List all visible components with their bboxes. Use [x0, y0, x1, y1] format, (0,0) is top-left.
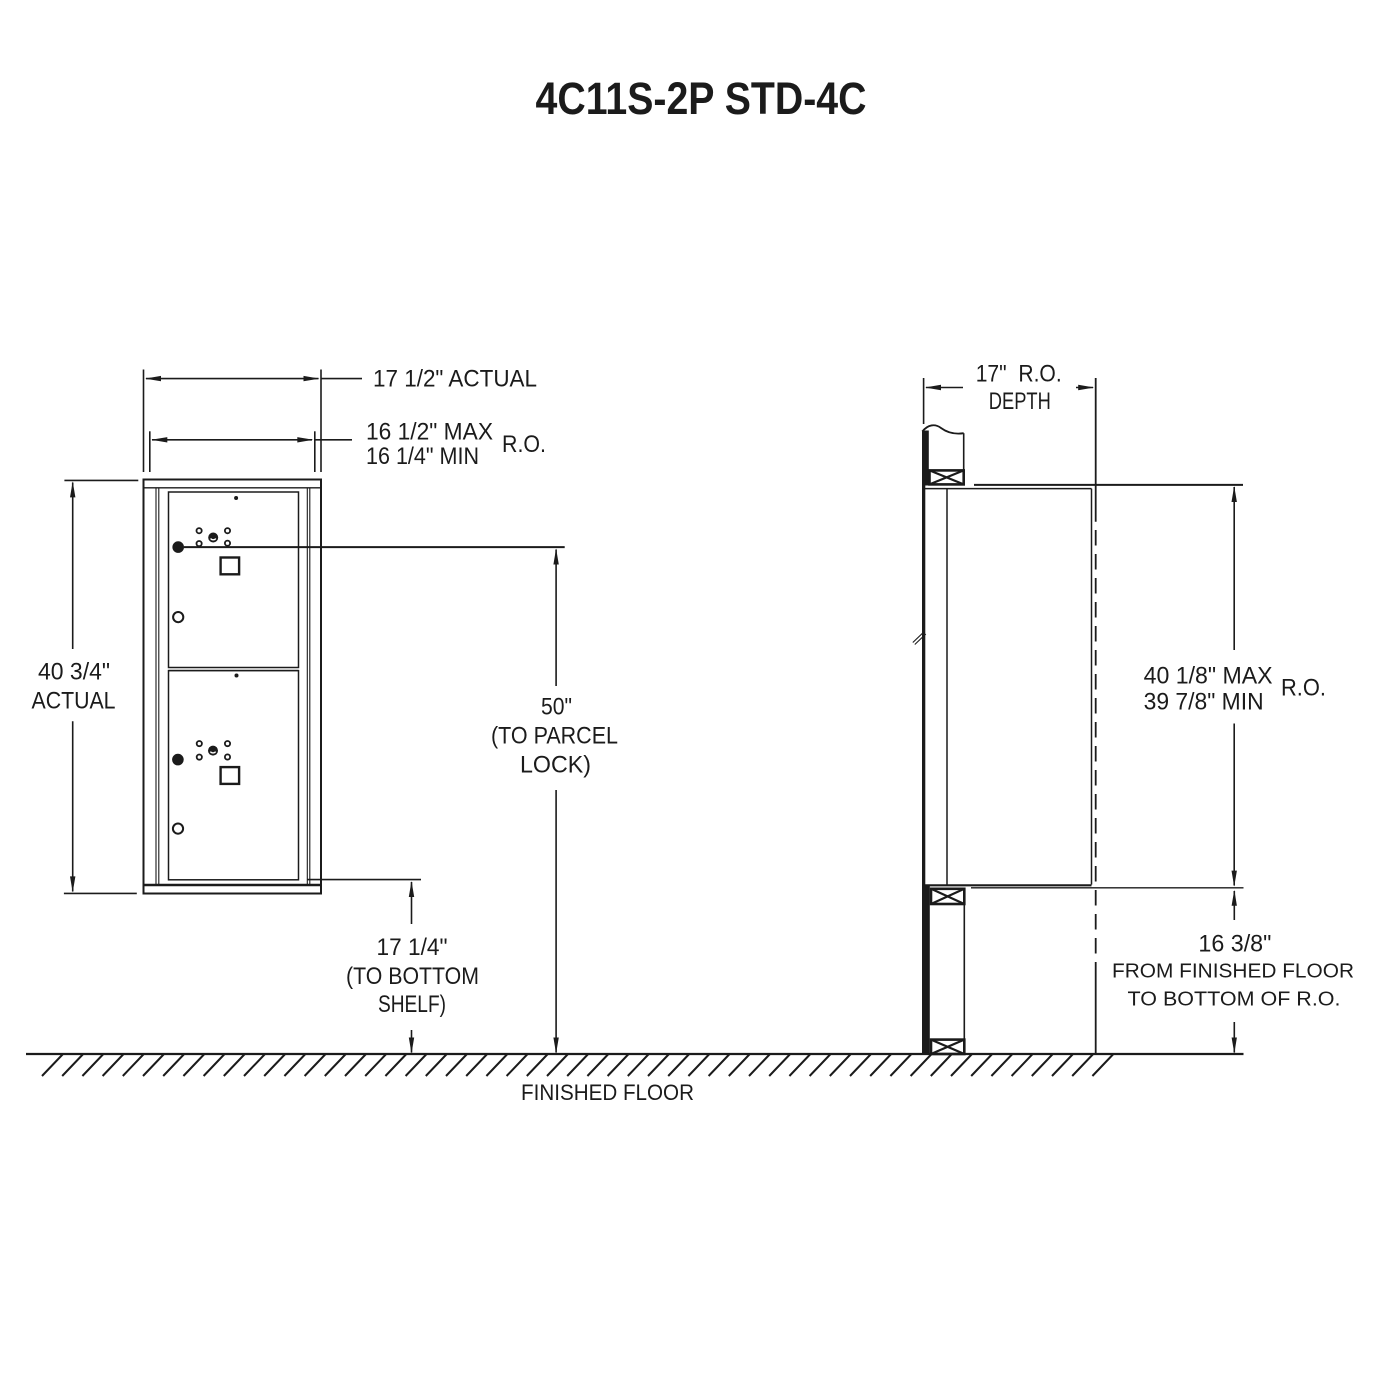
svg-text:ACTUAL: ACTUAL [32, 688, 116, 715]
svg-text:(TO PARCEL: (TO PARCEL [491, 723, 618, 750]
svg-text:DEPTH: DEPTH [989, 388, 1051, 415]
svg-text:17 1/4": 17 1/4" [377, 934, 448, 961]
svg-text:(TO BOTTOM: (TO BOTTOM [346, 963, 479, 990]
svg-text:17" R.O.: 17" R.O. [976, 361, 1062, 388]
svg-text:SHELF): SHELF) [378, 991, 446, 1018]
svg-text:16 1/4" MIN: 16 1/4" MIN [366, 443, 479, 470]
svg-text:4C11S-2P STD-4C: 4C11S-2P STD-4C [536, 73, 867, 124]
svg-text:FROM FINISHED FLOOR: FROM FINISHED FLOOR [1112, 961, 1354, 983]
svg-text:39 7/8" MIN: 39 7/8" MIN [1144, 689, 1264, 716]
svg-text:TO BOTTOM OF R.O.: TO BOTTOM OF R.O. [1128, 989, 1341, 1011]
svg-text:16 1/2" MAX: 16 1/2" MAX [366, 419, 493, 446]
svg-text:16 3/8": 16 3/8" [1198, 931, 1271, 958]
svg-text:LOCK): LOCK) [520, 752, 591, 779]
svg-text:R.O.: R.O. [502, 431, 546, 458]
svg-text:40 3/4": 40 3/4" [38, 659, 110, 686]
svg-text:FINISHED FLOOR: FINISHED FLOOR [521, 1080, 694, 1105]
svg-text:R.O.: R.O. [1281, 675, 1326, 702]
svg-text:40 1/8" MAX: 40 1/8" MAX [1144, 663, 1273, 690]
svg-text:50": 50" [541, 694, 572, 721]
svg-text:17 1/2" ACTUAL: 17 1/2" ACTUAL [373, 366, 537, 393]
